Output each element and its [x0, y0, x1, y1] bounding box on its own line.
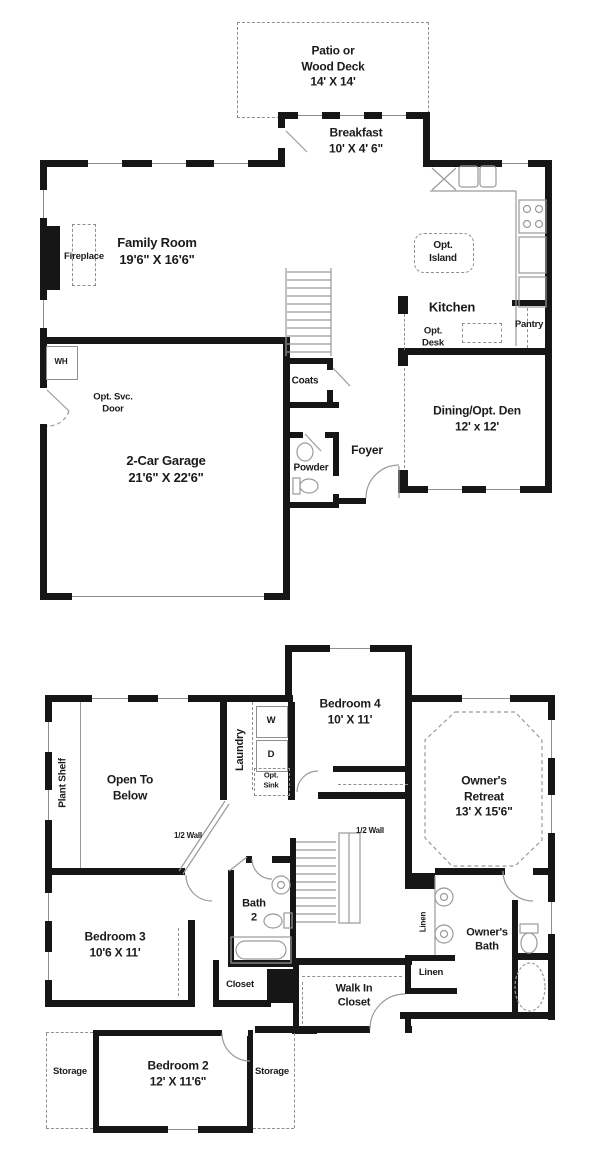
- bath2-door-opening: [252, 856, 272, 863]
- wall-segment: [405, 955, 455, 961]
- window: [45, 790, 52, 820]
- chase-mass: [405, 873, 435, 889]
- storage-label: Storage: [255, 1066, 289, 1078]
- wall-segment: [293, 958, 412, 965]
- wall-segment: [548, 868, 555, 1020]
- wall-segment: [405, 645, 412, 875]
- closet-rod-line: [338, 784, 408, 785]
- storage-label: Storage: [53, 1066, 87, 1078]
- wall-segment: [333, 766, 412, 772]
- plant-shelf-label: Plant Shelf: [58, 758, 69, 807]
- closet-rod-line: [302, 982, 303, 1024]
- half-wall-label: 1/2 Wall: [174, 831, 202, 841]
- window: [45, 893, 52, 921]
- owners-retreat-label: Owner's Retreat 13' X 15'6": [455, 774, 512, 821]
- linen-label: Linen: [419, 967, 443, 979]
- wall-segment: [228, 870, 234, 967]
- half-wall-label: 1/2 Wall: [356, 826, 384, 836]
- wall-segment: [228, 960, 296, 967]
- window: [92, 695, 128, 702]
- wall-segment: [45, 863, 52, 1007]
- wall-segment: [533, 868, 548, 875]
- closet-rod-line: [302, 976, 402, 977]
- closet-label: Closet: [226, 979, 254, 991]
- wall-segment: [292, 1028, 317, 1034]
- wall-segment: [45, 1000, 195, 1007]
- floor-plan: Patio or Wood Deck 14' X 14' Breakfast 1…: [0, 0, 600, 1175]
- storage-boundary: [294, 1033, 295, 1128]
- window: [548, 720, 555, 758]
- wall-segment: [220, 700, 227, 800]
- second-floor-plan: Bedroom 4 10' X 11' Owner's Retreat 13' …: [0, 0, 600, 1175]
- wall-segment: [405, 1026, 412, 1033]
- wall-segment: [318, 792, 412, 799]
- walk-in-closet-label: Walk In Closet: [336, 982, 373, 1011]
- window: [45, 952, 52, 980]
- wall-segment: [45, 868, 185, 875]
- washer-label: W: [267, 715, 276, 727]
- bedroom3-label: Bedroom 3 10'6 X 11': [85, 929, 146, 960]
- storage-boundary: [46, 1032, 93, 1033]
- window: [548, 795, 555, 833]
- storage-boundary: [46, 1033, 47, 1128]
- wall-segment: [247, 1030, 253, 1133]
- wall-segment: [400, 1012, 555, 1019]
- bedroom4-label: Bedroom 4 10' X 11': [320, 696, 381, 727]
- storage-boundary: [46, 1128, 93, 1129]
- plant-shelf-line: [80, 702, 81, 868]
- window: [168, 1126, 198, 1133]
- wall-segment: [405, 988, 457, 994]
- wall-segment: [293, 965, 299, 1033]
- linen-label: Linen: [419, 912, 428, 932]
- open-to-below-label: Open To Below: [107, 772, 153, 803]
- wall-segment: [512, 960, 518, 1015]
- storage-boundary: [253, 1128, 294, 1129]
- window: [45, 722, 52, 752]
- laundry-closet-line: [252, 702, 253, 790]
- bedroom2-label: Bedroom 2 12' X 11'6": [148, 1058, 209, 1089]
- window: [548, 902, 555, 934]
- window: [158, 695, 188, 702]
- bedroom2-door-opening: [222, 1030, 248, 1036]
- dryer-label: D: [268, 749, 275, 761]
- opt-sink-label: Opt. Sink: [263, 770, 278, 790]
- bath2-label: Bath 2: [242, 897, 266, 926]
- wall-segment: [213, 1000, 271, 1007]
- window: [330, 645, 370, 652]
- wall-segment: [435, 868, 505, 875]
- laundry-label: Laundry: [234, 729, 246, 771]
- window: [462, 695, 510, 702]
- owners-bath-label: Owner's Bath: [466, 926, 508, 955]
- second-floor-details: [0, 0, 600, 1175]
- wall-segment: [512, 900, 518, 958]
- closet-rod-line: [178, 928, 179, 996]
- wall-segment: [285, 645, 292, 702]
- chase-mass: [267, 969, 294, 1003]
- wall-segment: [93, 1030, 99, 1130]
- wall-segment: [188, 920, 195, 1002]
- wall-segment: [512, 953, 554, 960]
